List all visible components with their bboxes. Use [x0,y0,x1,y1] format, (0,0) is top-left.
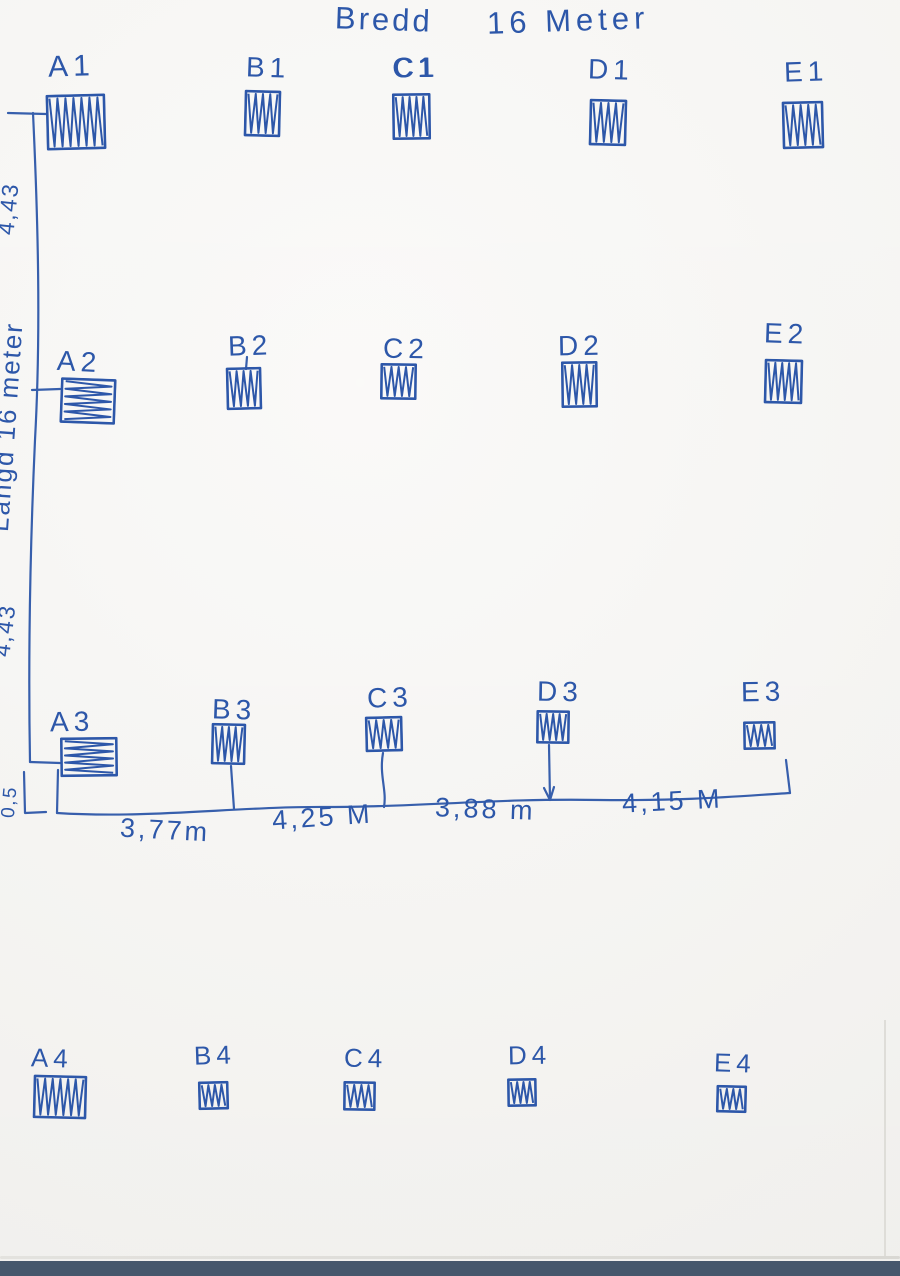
hatched-box-C1 [392,93,432,140]
hatched-box-B1 [243,90,281,138]
scanned-hand-drawing: Bredd 16 Meter 4,43 Långd 16 meter 4,43 … [0,0,900,1276]
hatched-box-C2 [380,363,417,400]
unit-label-B4: B4 [193,1039,236,1071]
hatched-box-C4 [343,1081,376,1111]
a2-tick [32,389,60,390]
unit-label-A2: A2 [56,345,102,379]
hatched-box-E3 [743,721,776,750]
baseline-start-tick [57,770,58,813]
hatched-box-A4 [32,1074,87,1119]
hatched-box-D2 [561,361,599,408]
hatched-box-B4 [198,1081,230,1111]
hatched-box-D1 [588,99,627,147]
unit-label-C1: C1 [393,52,439,85]
measure-lines-layer [0,0,900,1276]
hatched-box-B2 [225,367,262,411]
hatched-box-D4 [507,1078,537,1107]
unit-label-D3: D3 [537,676,583,709]
paper-right-edge [884,1020,886,1258]
unit-label-C3: C3 [366,681,413,715]
scanner-background-strip [0,1261,900,1276]
paper-bottom-edge [0,1256,900,1259]
d3-leader [549,745,550,799]
unit-label-E1: E1 [783,55,828,89]
hatched-box-A2 [59,377,117,425]
c3-leader [382,753,385,807]
baseline [57,793,790,815]
a1-tick [8,113,46,114]
unit-label-B1: B1 [245,51,290,85]
unit-label-E4: E4 [713,1047,756,1079]
hatched-box-C3 [365,716,404,753]
unit-label-B2: B2 [227,329,272,363]
unit-label-D2: D2 [558,330,604,363]
hatched-box-A1 [45,93,106,150]
unit-label-E3: E3 [741,676,786,709]
hatched-box-D3 [536,710,570,744]
unit-label-C2: C2 [383,333,429,366]
hatched-box-E4 [716,1085,748,1114]
offset-corner-mark [24,772,46,813]
unit-label-A1: A1 [47,49,95,85]
hatched-box-E1 [781,100,824,149]
unit-label-A4: A4 [30,1042,73,1074]
hatched-box-A3 [60,737,118,778]
baseline-end-tick [786,760,790,793]
unit-label-A3: A3 [50,706,95,739]
left-boundary-line [29,113,38,762]
unit-label-E2: E2 [763,317,808,351]
b3-leader [231,766,234,809]
a3-tick [30,762,60,763]
unit-label-C4: C4 [344,1043,388,1075]
hatched-box-B3 [210,723,246,766]
unit-label-D4: D4 [508,1040,552,1072]
hatched-box-E2 [763,359,803,405]
unit-label-B3: B3 [211,693,256,727]
unit-label-D1: D1 [587,53,634,87]
